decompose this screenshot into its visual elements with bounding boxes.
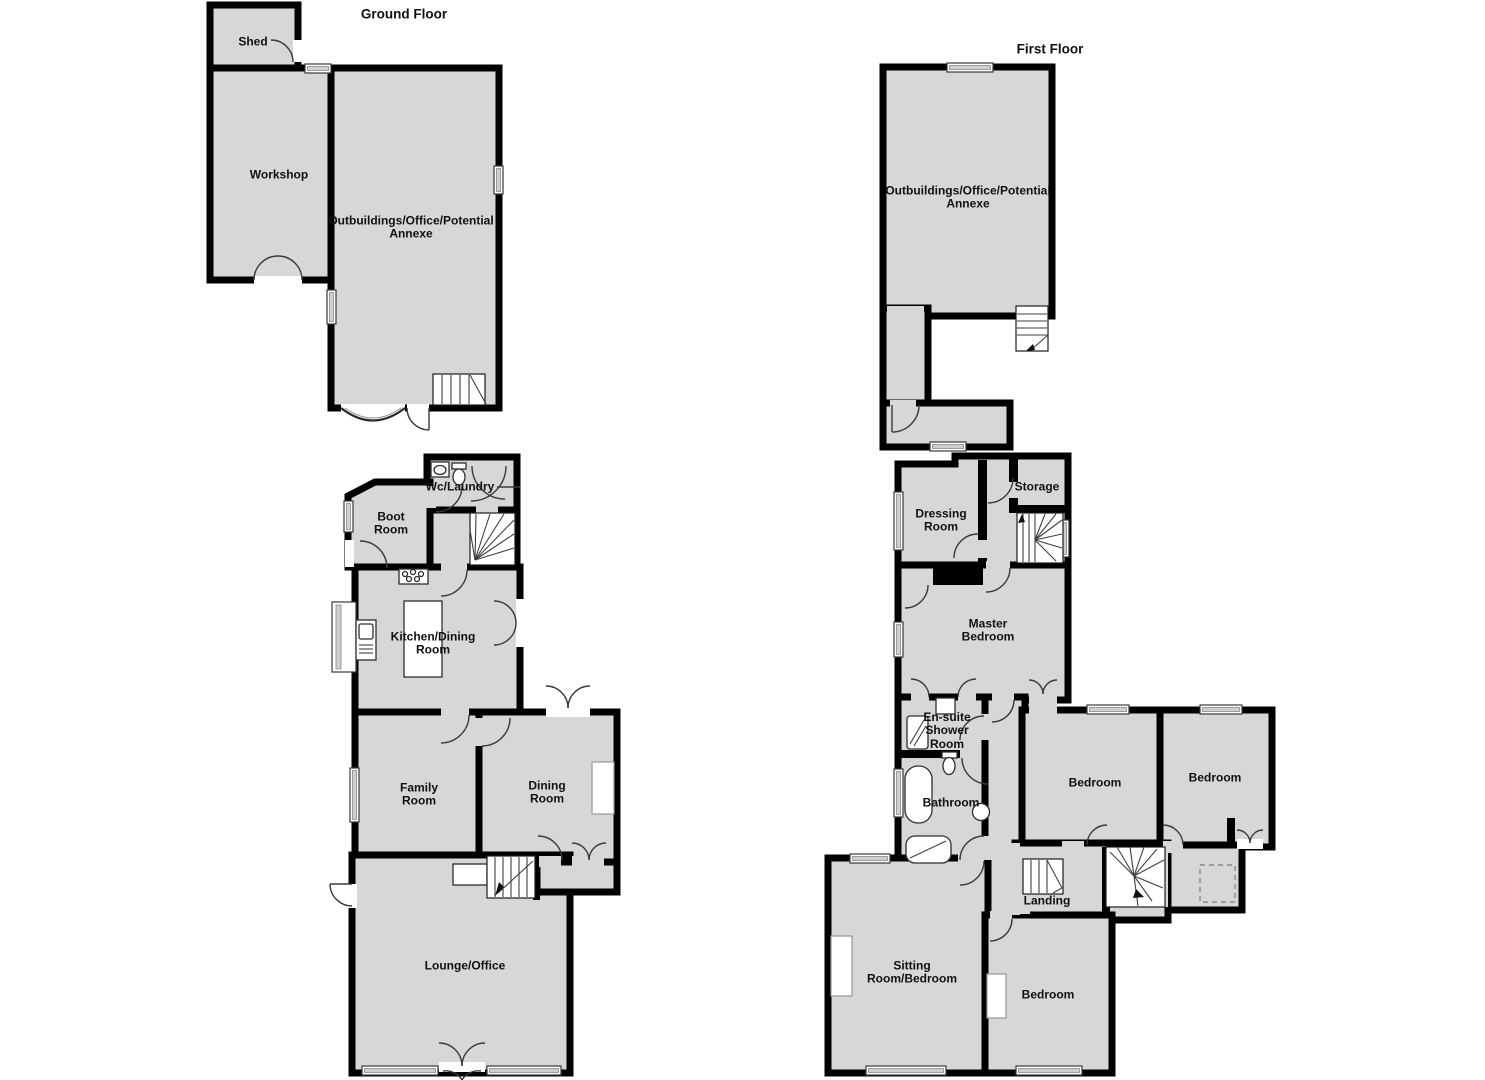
bay-window — [341, 404, 405, 421]
staircase-landing-straight — [1023, 859, 1063, 894]
chimney-breast — [933, 565, 983, 585]
floorplan-drawing — [0, 0, 1485, 1080]
annexe-first-left-arm — [883, 308, 928, 410]
room-label-master-bedroom: Master Bedroom — [962, 618, 1015, 645]
toilet-cistern — [452, 463, 466, 469]
toilet — [943, 758, 955, 775]
room-label-bedroom-right: Bedroom — [1189, 771, 1242, 784]
ground-floor-title: Ground Floor — [361, 7, 447, 22]
room-label-ensuite: En-suite Shower Room — [923, 711, 970, 751]
staircase-annexe-ground — [433, 374, 486, 405]
room-label-boot-room: Boot Room — [374, 511, 408, 538]
room-label-storage: Storage — [1015, 480, 1060, 493]
under-bedroom-area — [1160, 845, 1242, 910]
first-outbuilding — [883, 63, 1052, 451]
first-floor-title: First Floor — [1017, 42, 1084, 57]
room-label-bedroom-lower: Bedroom — [1022, 988, 1075, 1001]
staircase-first-winder — [1017, 513, 1063, 563]
room-label-lounge-office: Lounge/Office — [425, 959, 506, 972]
room-label-sitting-room: Sitting Room/Bedroom — [867, 960, 957, 987]
room-label-family-room: Family Room — [400, 782, 438, 809]
staircase-hall-winder — [470, 513, 515, 565]
room-label-dressing-room: Dressing Room — [915, 508, 966, 535]
room-label-shed: Shed — [238, 35, 267, 48]
sitting-room-recess — [831, 936, 852, 996]
house-ground-floor — [330, 457, 617, 1080]
staircase-annexe-first — [1016, 306, 1048, 351]
room-label-kitchen-dining: Kitchen/Dining Room — [391, 631, 476, 658]
floorplan-page: Ground Floor First Floor Shed Workshop O… — [0, 0, 1485, 1080]
room-label-bathroom: Bathroom — [923, 796, 980, 809]
room-label-bedroom-left: Bedroom — [1069, 776, 1122, 789]
staircase-landing-winder — [1106, 847, 1165, 907]
bedroom-lower-recess — [987, 974, 1006, 1018]
room-label-annexe-ground: Outbuildings/Office/Potential Annexe — [328, 215, 493, 242]
room-label-landing: Landing — [1024, 894, 1071, 907]
room-label-dining-room: Dining Room — [528, 780, 565, 807]
room-label-annexe-first: Outbuildings/Office/Potential Annexe — [885, 185, 1050, 212]
room-label-workshop: Workshop — [250, 168, 308, 181]
room-label-wc-laundry: Wc/Laundry — [426, 480, 495, 493]
dining-chimney-recess — [592, 762, 614, 814]
